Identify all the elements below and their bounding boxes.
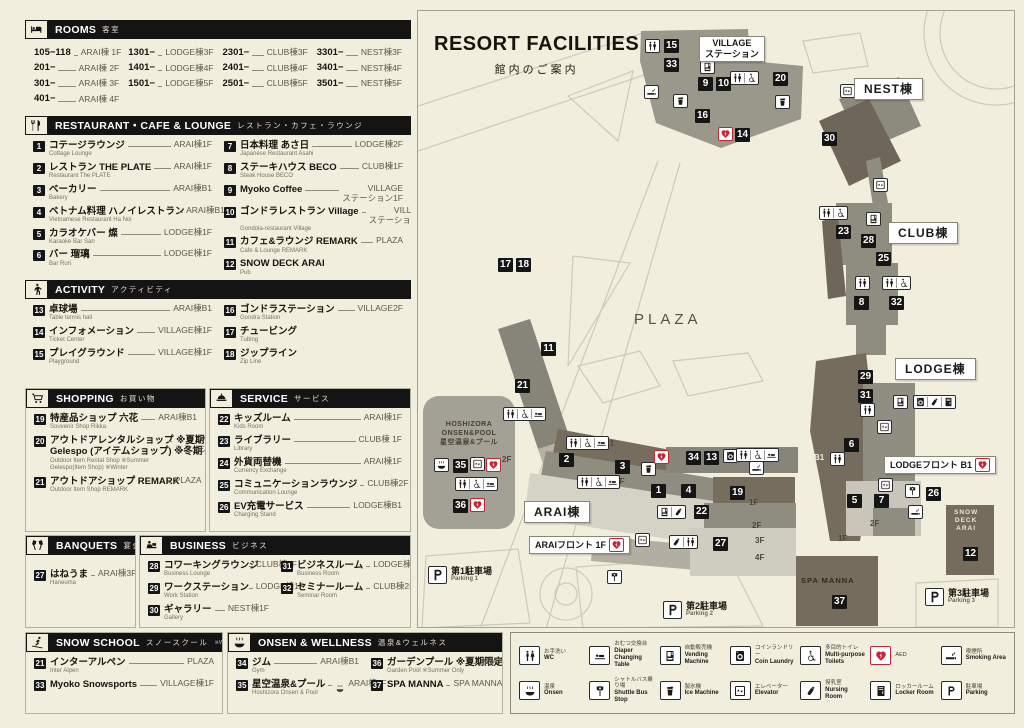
facility-item: 27はねうまARAI棟3FHaneuma (34, 569, 127, 588)
busstop-icon (907, 486, 918, 496)
facility-location: CLUB棟2F (367, 479, 408, 489)
section-business-header: BUSINESS ビジネス (140, 536, 410, 555)
map-marker-11: 11 (541, 342, 556, 356)
busstop-badge (607, 570, 622, 584)
facility-item: 21インターアルペンPLAZAInter Alpen (34, 657, 214, 676)
facility-name: 外貨両替機 (234, 457, 282, 468)
leader-line (154, 168, 171, 169)
facility-location: CLUB棟2F (373, 582, 411, 592)
diaper-icon (594, 438, 607, 448)
facility-number-badge: 21 (34, 477, 46, 488)
facility-location: LODGE棟1F (164, 228, 212, 238)
facility-number-badge: 17 (224, 327, 236, 338)
room-range: 2401− (223, 62, 250, 73)
walking-person-icon (26, 281, 47, 298)
room-range-row: 105−118ARAI棟 1F (34, 46, 119, 58)
facility-number-badge: 29 (148, 583, 160, 594)
item-column: 16ゴンドラステーションVILLAGE2FGondra Station17チュー… (224, 304, 403, 370)
onsen-icon (436, 460, 447, 470)
parking-icon (663, 601, 682, 619)
legend-label-en: Locker Room (895, 690, 933, 697)
room-location: LODGE棟3F (165, 46, 213, 58)
map-marker-1: 1 (651, 484, 666, 498)
laundry-icon (915, 397, 926, 407)
diaper-icon (531, 409, 544, 419)
legend-label-ja: 多目的トイレ (825, 645, 865, 652)
facility-name: EV充電サービス (234, 501, 304, 512)
facility-location: VILLAGEステーション1F (369, 206, 411, 226)
banquet-icon (27, 537, 48, 554)
smoking-icon (646, 87, 657, 97)
facility-location: PLAZA (376, 236, 403, 246)
facility-item: 9Myoko CoffeeVILLAGEステーション1F (224, 184, 403, 204)
facility-location: LODGE棟2F (355, 140, 403, 150)
section-service: SERVICE サービス 22キッズルームARAI棟1FKids Room23ラ… (209, 388, 411, 532)
facility-location: ARAI棟1F (364, 457, 402, 467)
service-list: 22キッズルームARAI棟1FKids Room23ライブラリーCLUB棟 1F… (210, 408, 410, 527)
wc-icon (884, 278, 895, 288)
room-range: 301− (34, 78, 55, 89)
leader-line (215, 610, 225, 611)
facility-name: プレイグラウンド (49, 348, 125, 359)
facility-number-badge: 12 (224, 259, 236, 270)
facility-number-badge: 35 (236, 680, 248, 691)
map-marker-2: 2 (559, 453, 574, 467)
facility-location: VILLAGE棟1F (158, 326, 212, 336)
item-column: 1コテージラウンジARAI棟1FCottage Lounge2レストラン THE… (33, 140, 212, 277)
legend-label-ja: 駐車場 (966, 684, 988, 691)
facility-name: セミナールーム (297, 582, 363, 593)
aed-icon (870, 646, 891, 665)
section-rooms: ROOMS 客室 105−118ARAI棟 1F201−ARAI棟 2F301−… (25, 20, 411, 114)
facility-item: 29ワークステーションLODGE棟1FWork Station (148, 582, 269, 601)
wc-icon (738, 450, 749, 460)
facility-name: はねうま (50, 569, 88, 580)
parking-label: 第1駐車場Parking 1 (428, 566, 492, 584)
facility-name: コテージラウンジ (49, 140, 125, 151)
facility-item: 12SNOW DECK ARAIPub (224, 258, 403, 277)
elevator-icon (880, 480, 891, 490)
leader-line (121, 234, 161, 235)
facility-item: 19特産品ショップ 六花ARAI棟B1Souvenir Shop Rikka (34, 413, 197, 432)
room-range: 1501− (128, 78, 155, 89)
facility-name-en: Business Room (297, 571, 402, 579)
map-marker-32: 32 (889, 296, 904, 310)
legend-label-en: Elevator (755, 690, 788, 697)
map-marker-35: 35 (453, 459, 468, 473)
elevator-icon (637, 535, 648, 545)
map-marker-10: 10 (716, 77, 731, 91)
wc-badge (645, 39, 660, 53)
facility-name: ステーキハウス BECO (240, 162, 337, 173)
room-range-row: 1301−LODGE棟3F (128, 46, 213, 58)
ice-badge (641, 462, 656, 476)
item-column: 31ビジネスルームLODGE棟1FBusiness Room32セミナールームC… (281, 560, 402, 626)
legend-label-ja: お手洗い (544, 649, 566, 656)
rooms-column: 1301−LODGE棟3F1401−LODGE棟4F1501−LODGE棟5F (128, 46, 213, 108)
wc-icon (732, 73, 743, 83)
leader-line (294, 419, 361, 420)
leader-line (74, 55, 78, 56)
room-range: 2301− (223, 47, 250, 58)
section-title-ja: お買い物 (120, 393, 156, 404)
wc-badge (855, 276, 870, 290)
section-restaurant-header: RESTAURANT・CAFE & LOUNGE レストラン・カフェ・ラウンジ (25, 116, 411, 135)
room-range-row: 3501−NEST棟5F (317, 77, 402, 89)
leader-line (252, 86, 263, 87)
leader-line (473, 663, 477, 664)
map-title-block: RESORT FACILITIES 館内のご案内 (434, 33, 639, 77)
leader-line (285, 463, 361, 464)
room-range: 3401− (317, 62, 344, 73)
map-marker-14: 14 (735, 128, 750, 142)
facility-item: 31ビジネスルームLODGE棟1FBusiness Room (281, 560, 402, 579)
shopping-list: 19特産品ショップ 六花ARAI棟B1Souvenir Shop Rikka20… (26, 408, 205, 503)
section-title-ja: ビジネス (232, 540, 268, 551)
leader-line (158, 55, 162, 56)
room-location: LODGE棟5F (165, 77, 213, 89)
parking-name: 第1駐車場 (451, 566, 492, 576)
elevator-badge (877, 420, 892, 434)
map-marker-13: 13 (704, 451, 719, 465)
rooms-column: 2301−CLUB棟3F2401−CLUB棟4F2501−CLUB棟5F (223, 46, 308, 108)
facility-name: キッズルーム (234, 413, 291, 424)
leader-line (346, 86, 357, 87)
legend-label-en: Multi-purpose Toilets (825, 652, 865, 666)
diaper-icon (605, 477, 618, 487)
ski-icon (27, 634, 48, 651)
smoking-icon (910, 507, 921, 517)
facility-name: アウトドアレンタルショップ ※夏期 (50, 435, 165, 446)
leader-line (305, 190, 339, 191)
section-title: SNOW SCHOOL (56, 637, 140, 649)
facility-name: レストラン THE PLATE (49, 162, 151, 173)
wc-icon (505, 409, 516, 419)
room-range-row: 2501−CLUB棟5F (223, 77, 308, 89)
facility-item: 28コワーキングラウンジCLUB棟2FBusiness Lounge (148, 560, 269, 579)
parking-icon (941, 681, 962, 700)
leader-line (128, 146, 171, 147)
elevator-icon (879, 422, 890, 432)
leader-line (91, 575, 95, 576)
facility-number-badge: 1 (33, 141, 45, 152)
section-restaurant: RESTAURANT・CAFE & LOUNGE レストラン・カフェ・ラウンジ … (25, 116, 411, 277)
section-title-ja: サービス (294, 393, 330, 404)
facility-number-badge: 18 (224, 349, 236, 360)
map-marker-29: 29 (858, 370, 873, 384)
facility-number-badge: 22 (218, 414, 230, 425)
room-range-row: 1401−LODGE棟4F (128, 62, 213, 74)
laundry-icon (725, 451, 736, 461)
legend-item: シャトルバス乗り場Shuttle Bus Stop (589, 677, 654, 705)
item-column: 28コワーキングラウンジCLUB棟2FBusiness Lounge29ワークス… (148, 560, 269, 626)
smoking-badge (644, 85, 659, 99)
facility-name-en: Gelespo(Item Shop) ※Winter (50, 465, 197, 473)
facility-name-en: Gym (252, 668, 359, 676)
leader-line (141, 419, 155, 420)
map-text: 2F (870, 519, 879, 529)
aed-icon (720, 129, 731, 139)
room-location: NEST棟3F (361, 46, 402, 58)
legend-label-en: Coin Laundry (755, 659, 795, 666)
wheelchair-icon (833, 208, 846, 218)
facility-name-en: Tubing (240, 337, 403, 345)
facility-item: 17チュービングTubing (224, 326, 403, 345)
map-text: SNOWDECKARAI (954, 509, 978, 533)
facility-item: 16ゴンドラステーションVILLAGE2FGondra Station (224, 304, 403, 323)
busstop-icon (589, 681, 610, 700)
busstop-icon (609, 572, 620, 582)
facility-item: 36ガーデンプール ※夏期限定ARAI棟2FGarden Pool ※Summe… (371, 657, 494, 676)
facility-name: Gelespo (アイテムショップ) ※冬期 (50, 446, 165, 457)
vending-icon (895, 397, 906, 407)
leader-line (168, 482, 172, 483)
facility-location: NEST棟1F (228, 604, 269, 614)
banquets-list: 27はねうまARAI棟3FHaneuma (26, 555, 135, 596)
facility-name-en: Ticket Center (49, 337, 212, 345)
onsen-icon (519, 681, 540, 700)
wc-icon (683, 537, 696, 547)
facility-name-en: Bakery (49, 195, 212, 203)
legend-label-en: Onsen (544, 690, 563, 697)
diaper-icon (589, 646, 610, 665)
room-location: CLUB棟3F (267, 46, 308, 58)
facility-name: カラオケバー 燦 (49, 228, 118, 239)
map-marker-16: 16 (695, 109, 710, 123)
facility-location: VILLAGE棟1F (158, 348, 212, 358)
cutlery-icon (26, 117, 47, 134)
wc-icon (862, 405, 873, 415)
facility-name-en: Karaoke Bar San (49, 239, 212, 247)
map-marker-3: 3 (615, 460, 630, 474)
facility-name-en: Steak House BECO (240, 173, 403, 181)
activity-list: 13卓球場ARAI棟B1Table tennis hall14インフォメーション… (25, 299, 411, 375)
facility-item: 18ジップラインZip Line (224, 348, 403, 367)
map-label: ARAI棟 (524, 501, 590, 523)
facility-name-en: Vietnamese Restaurant Ha Noi (49, 217, 212, 225)
room-location: CLUB棟4F (267, 62, 308, 74)
map-label: CLUB棟 (888, 222, 958, 244)
facility-name-en: Charging Stand (234, 512, 402, 520)
legend-label-ja: ロッカールーム (895, 684, 933, 691)
resort-facilities-map-page: ROOMS 客室 105−118ARAI棟 1F201−ARAI棟 2F301−… (0, 0, 1024, 728)
facility-name: ビジネスルーム (297, 560, 363, 571)
smoking-badge (908, 505, 923, 519)
map-text: 2F (502, 455, 511, 465)
map-marker-5: 5 (847, 494, 862, 508)
leader-line (58, 101, 75, 102)
facility-number-badge: 15 (33, 349, 45, 360)
elevator-badge (878, 478, 893, 492)
spa-icon (229, 634, 250, 651)
item-column: 19特産品ショップ 六花ARAI棟B1Souvenir Shop Rikka20… (34, 413, 197, 498)
wc-wheelchair-diaper-badge (566, 436, 609, 450)
section-shopping: SHOPPING お買い物 19特産品ショップ 六花ARAI棟B1Souveni… (25, 388, 206, 532)
onsen-badge (434, 458, 449, 472)
map-label-line: NEST棟 (864, 82, 913, 96)
facility-location: ARAI棟B1 (173, 184, 212, 194)
section-service-header: SERVICE サービス (210, 389, 410, 408)
map-marker-15: 15 (664, 39, 679, 53)
wc-icon (832, 454, 843, 464)
facility-item: 1コテージラウンジARAI棟1FCottage Lounge (33, 140, 212, 159)
map-subtitle: 館内のご案内 (434, 61, 639, 77)
wc-icon (647, 41, 658, 51)
facility-location: ARAI棟1F (174, 162, 212, 172)
laundry-icon (730, 646, 751, 665)
facility-item: 6バー 瑠璃LODGE棟1FBar Ruri (33, 249, 212, 268)
section-activity: ACTIVITY アクティビティ 13卓球場ARAI棟B1Table tenni… (25, 280, 411, 384)
facility-number-badge: 8 (224, 163, 236, 174)
room-range-row: 2401−CLUB棟4F (223, 62, 308, 74)
facility-name: ジム (252, 657, 271, 668)
map-title: RESORT FACILITIES (434, 33, 639, 56)
facility-number-badge: 32 (281, 583, 293, 594)
map-label-line: LODGEフロント B1 (890, 460, 972, 471)
facility-number-badge: 14 (33, 327, 45, 338)
wc-wheelchair-diaper-badge (577, 475, 620, 489)
leader-line (100, 190, 171, 191)
facility-name-en: Japanese Restaurant Asahi (240, 151, 403, 159)
facility-name-en: Gondola-restaurant Village (240, 226, 403, 234)
section-onsen-wellness-header: ONSEN & WELLNESS 温泉&ウェルネス (228, 633, 502, 652)
legend-label-ja: 温泉 (544, 684, 563, 691)
leader-line (346, 70, 357, 71)
section-title: ONSEN & WELLNESS (258, 637, 372, 649)
section-title: ACTIVITY (55, 284, 105, 296)
facility-number-badge: 16 (224, 305, 236, 316)
smoking-icon (751, 463, 762, 473)
wheelchair-icon (469, 479, 482, 489)
map-marker-22: 22 (694, 505, 709, 519)
map-text: 2F (752, 521, 761, 531)
parking-name-en: Parking 1 (451, 576, 492, 582)
ice-badge (673, 94, 688, 108)
parking-name-en: Parking 2 (686, 611, 727, 617)
legend-item: おむつ交換台Diaper Changing Table (589, 641, 654, 669)
facility-name: インターアルペン (50, 657, 126, 668)
facility-name: 卓球場 (49, 304, 78, 315)
facility-location: ARAI棟B1 (320, 657, 359, 667)
wheelchair-icon (896, 278, 909, 288)
facility-name: ワークステーション (164, 582, 246, 593)
section-title-ja: 温泉&ウェルネス (378, 637, 448, 648)
vending-icon (659, 507, 670, 517)
elevator-badge (635, 533, 650, 547)
parking-name: 第3駐車場 (948, 588, 989, 598)
facility-location: ARAI棟1F (364, 413, 402, 423)
map-marker-27: 27 (713, 537, 728, 551)
wheelchair-icon (750, 450, 763, 460)
map-marker-34: 34 (686, 451, 701, 465)
map-label-line: VILLAGE (705, 38, 759, 49)
vending-icon (868, 214, 879, 224)
section-title: RESTAURANT・CAFE & LOUNGE (55, 118, 231, 133)
facility-number-badge: 25 (218, 480, 230, 491)
legend-label-en: Nursing Room (825, 687, 865, 701)
map-text: 3F (755, 536, 764, 546)
legend-label-ja: 授乳室 (825, 680, 865, 687)
section-shopping-header: SHOPPING お買い物 (26, 389, 205, 408)
elevator-icon (875, 180, 886, 190)
map-marker-25: 25 (876, 252, 891, 266)
legend-label-en: WC (544, 655, 566, 662)
elevator-icon (472, 459, 483, 469)
ice-icon (660, 681, 681, 700)
map-marker-19: 19 (730, 486, 745, 500)
facility-location: VILLAGEステーション1F (175, 435, 206, 455)
facility-item: 24外貨両替機ARAI棟1FCurrency Exchange (218, 457, 402, 476)
room-location: NEST棟5F (361, 77, 402, 89)
leader-line (312, 146, 352, 147)
map-marker-28: 28 (861, 234, 876, 248)
facility-number-badge: 36 (371, 658, 383, 669)
parking-icon (428, 566, 447, 584)
legend-label-en: Diaper Changing Table (614, 648, 654, 670)
legend-label-en: Ice Machine (685, 690, 719, 697)
facility-name: ゴンドラレストラン Village (240, 206, 359, 217)
resort-map: RESORT FACILITIES 館内のご案内 153391020161430… (417, 10, 1015, 628)
wheelchair-icon (800, 646, 821, 665)
facility-item: 14インフォメーションVILLAGE棟1FTicket Center (33, 326, 212, 345)
facility-location: VILLAGEステーション1F (342, 184, 403, 204)
facility-name: コミュニケーションラウンジ (234, 479, 357, 490)
facility-location: ARAI棟2F (480, 657, 503, 667)
restaurant-list: 1コテージラウンジARAI棟1FCottage Lounge2レストラン THE… (25, 135, 411, 277)
facility-location: ARAI棟B1 (173, 304, 212, 314)
rooms-column: 105−118ARAI棟 1F201−ARAI棟 2F301−ARAI棟 3F4… (34, 46, 119, 108)
elevator-icon (730, 681, 751, 700)
map-label: LODGEフロント B1 (884, 456, 996, 474)
leader-line (249, 566, 253, 567)
map-marker-30: 30 (822, 132, 837, 146)
facility-item: 4ベトナム料理 ハノイレストランARAI棟B1Vietnamese Restau… (33, 206, 212, 225)
ice-icon (643, 464, 654, 474)
map-label: VILLAGEステーション (699, 36, 765, 62)
facility-name-en: Pub (240, 270, 403, 277)
aed-badge (470, 498, 485, 512)
facility-location: PLAZA (175, 476, 202, 486)
room-location: ARAI棟 4F (79, 93, 120, 105)
legend-label-en: Vending Machine (685, 652, 725, 666)
facility-location: LODGE棟1F (373, 560, 411, 570)
facility-item: 25コミュニケーションラウンジCLUB棟2FCommunication Loun… (218, 479, 402, 498)
leader-line (360, 485, 364, 486)
wc-icon (519, 646, 540, 665)
section-title: BANQUETS (56, 540, 117, 552)
map-text: 4F (755, 553, 764, 563)
leader-line (346, 55, 357, 56)
nursing-icon (671, 537, 682, 547)
section-title: SERVICE (240, 393, 288, 405)
facility-location: LODGE棟1F (164, 249, 212, 259)
leader-line (168, 441, 172, 442)
facility-location: VILLAGE2F (358, 304, 403, 314)
leader-line (252, 55, 263, 56)
facility-name-en: Zip Line (240, 359, 403, 367)
facility-name: 日本料理 あさ日 (240, 140, 309, 151)
facility-name-en: Restaurant The PLATE (49, 173, 212, 181)
wc-badge (830, 452, 845, 466)
section-title: SHOPPING (56, 393, 114, 405)
map-marker-8: 8 (854, 296, 869, 310)
map-background (418, 11, 1015, 628)
map-marker-20: 20 (773, 72, 788, 86)
parking-label: 第2駐車場Parking 2 (663, 601, 727, 619)
leader-line (294, 441, 356, 442)
facility-item: 3ベーカリーARAI棟B1Bakery (33, 184, 212, 203)
facility-name: ベトナム料理 ハノイレストラン (49, 206, 176, 217)
